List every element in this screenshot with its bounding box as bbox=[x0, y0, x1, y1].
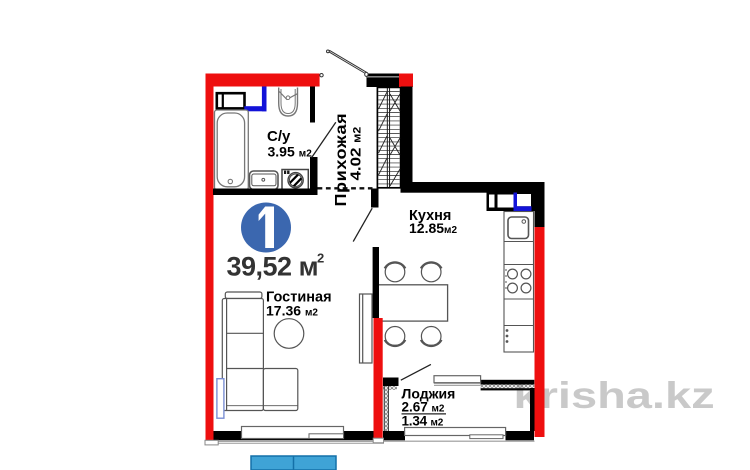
svg-text:Прихожая: Прихожая bbox=[332, 113, 350, 207]
svg-text:м2: м2 bbox=[299, 148, 312, 159]
svg-text:3.95: 3.95 bbox=[268, 143, 295, 159]
svg-text:2: 2 bbox=[317, 251, 324, 266]
svg-text:39,52 м: 39,52 м bbox=[227, 252, 319, 282]
svg-text:4.02 м2: 4.02 м2 bbox=[348, 126, 364, 180]
